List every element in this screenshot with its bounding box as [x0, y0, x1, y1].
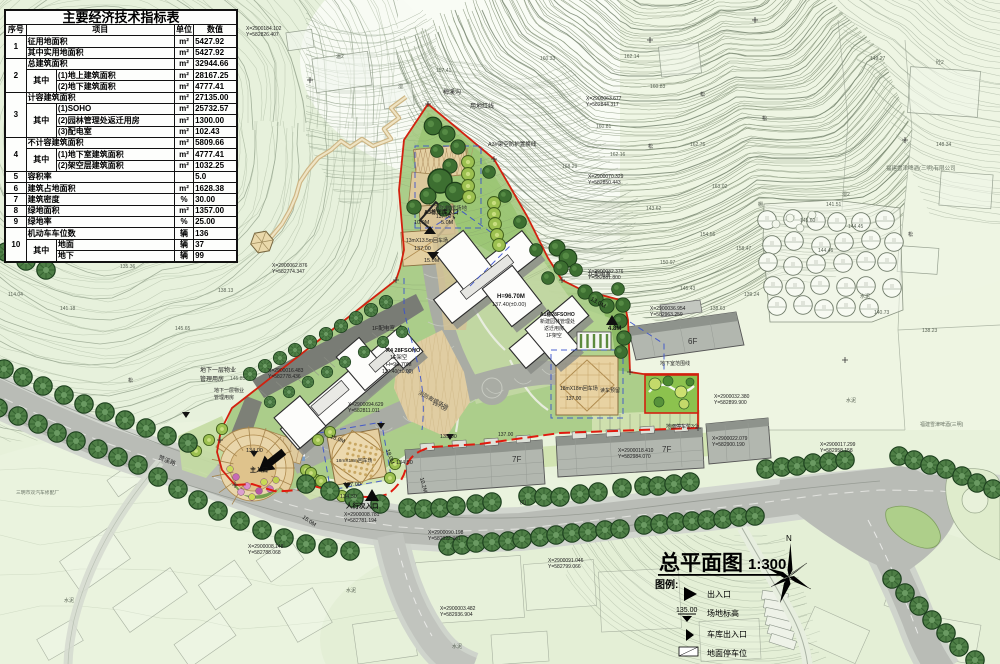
svg-text:棚: 棚	[758, 201, 763, 208]
svg-text:157.41: 157.41	[436, 68, 452, 74]
svg-text:141.18: 141.18	[60, 306, 76, 312]
svg-text:水泥: 水泥	[846, 397, 856, 404]
svg-text:福建雪津啤酒(三明): 福建雪津啤酒(三明)	[920, 421, 964, 428]
svg-text:162.16: 162.16	[610, 152, 626, 158]
svg-text:145.85: 145.85	[230, 376, 246, 382]
svg-text:A3#架空防护置换线: A3#架空防护置换线	[488, 140, 537, 148]
svg-text:143.62: 143.62	[646, 206, 662, 212]
svg-text:松: 松	[700, 91, 705, 98]
svg-text:A4 28FSOHO: A4 28FSOHO	[386, 348, 421, 354]
svg-text:137.00: 137.00	[344, 482, 361, 488]
svg-text:Y=582799.066: Y=582799.066	[548, 564, 581, 570]
svg-text:主入口: 主入口	[250, 466, 268, 474]
svg-text:150.97: 150.97	[660, 260, 676, 266]
svg-text:消防救援场地: 消防救援场地	[434, 204, 468, 212]
svg-text:114.04: 114.04	[8, 292, 23, 298]
svg-text:地面停车位: 地面停车位	[707, 648, 747, 658]
svg-text:松: 松	[908, 231, 913, 238]
svg-text:Y=582900.190: Y=582900.190	[712, 442, 745, 448]
svg-text:管理用房: 管理用房	[200, 375, 224, 383]
svg-text:5.0M: 5.0M	[441, 220, 454, 226]
svg-text:149.27: 149.27	[870, 56, 886, 62]
svg-text:Y=582774.347: Y=582774.347	[272, 269, 305, 275]
svg-text:Y=582844.317: Y=582844.317	[586, 102, 619, 108]
svg-text:三明市双汽车修配厂: 三明市双汽车修配厂	[16, 489, 59, 496]
svg-text:新建园林管理处: 新建园林管理处	[540, 318, 575, 325]
svg-text:137.00: 137.00	[414, 246, 431, 252]
svg-text:场地标高: 场地标高	[707, 608, 739, 618]
svg-text:总平面图: 总平面图	[659, 551, 743, 575]
svg-text:松: 松	[762, 115, 767, 122]
svg-text:车库出入口: 车库出入口	[707, 629, 747, 639]
svg-text:图例:: 图例:	[655, 578, 678, 591]
svg-text:Y=582826.407: Y=582826.407	[246, 32, 279, 38]
svg-text:162.76: 162.76	[690, 142, 706, 148]
svg-text:N: N	[786, 534, 792, 543]
svg-text:1F架空: 1F架空	[546, 332, 562, 339]
svg-text:Y=582963.259: Y=582963.259	[650, 312, 683, 318]
svg-text:18mX18m回车场: 18mX18m回车场	[560, 385, 598, 392]
svg-text:148.34: 148.34	[936, 142, 952, 148]
svg-text:松: 松	[648, 143, 653, 150]
svg-text:135.36: 135.36	[120, 264, 136, 270]
svg-text:137.00: 137.00	[436, 214, 452, 220]
svg-text:7F: 7F	[512, 455, 521, 464]
svg-text:144.46: 144.46	[818, 248, 834, 254]
svg-text:读车预留: 读车预留	[600, 387, 620, 394]
svg-text:返迁用房: 返迁用房	[544, 325, 564, 332]
svg-text:温2: 温2	[336, 53, 344, 60]
svg-text:144.45: 144.45	[848, 224, 864, 230]
svg-text:18mX18m回车场: 18mX18m回车场	[336, 457, 372, 464]
svg-text:145.65: 145.65	[175, 326, 191, 332]
svg-text:13mX13.5m回车场: 13mX13.5m回车场	[406, 237, 448, 244]
svg-text:H=96.70M: H=96.70M	[386, 362, 412, 368]
svg-text:137.00: 137.00	[498, 432, 514, 438]
svg-text:Y=582958.158: Y=582958.158	[820, 448, 853, 454]
svg-text:160.81: 160.81	[596, 124, 612, 130]
svg-text:砼2: 砼2	[936, 59, 944, 66]
svg-text:137.40(±0.00): 137.40(±0.00)	[382, 369, 413, 375]
svg-text:Y=582778.436: Y=582778.436	[268, 374, 301, 380]
svg-text:141.51: 141.51	[826, 202, 842, 208]
svg-text:水泥: 水泥	[64, 597, 74, 604]
svg-text:Y=582781.194: Y=582781.194	[344, 518, 377, 524]
svg-text:Y=582984.070: Y=582984.070	[618, 454, 651, 460]
svg-text:134.00: 134.00	[246, 448, 263, 454]
svg-text:Y=582850.443: Y=582850.443	[588, 180, 621, 186]
svg-text:地面停车位3个: 地面停车位3个	[666, 423, 699, 430]
svg-text:160.33: 160.33	[540, 56, 556, 62]
svg-text:(1): (1)	[520, 500, 526, 506]
svg-text:1F配电室: 1F配电室	[588, 270, 611, 278]
svg-text:15.0M: 15.0M	[424, 258, 440, 264]
svg-text:Y=582788.068: Y=582788.068	[248, 550, 281, 556]
svg-text:水泥: 水泥	[452, 643, 462, 650]
svg-text:1F架空: 1F架空	[390, 353, 408, 361]
svg-text:水泥: 水泥	[346, 587, 356, 594]
svg-text:Y=582936.904: Y=582936.904	[440, 612, 473, 618]
svg-text:松: 松	[128, 377, 133, 384]
svg-text:A1栋28FSOHO: A1栋28FSOHO	[540, 311, 575, 318]
svg-text:6F: 6F	[688, 337, 697, 346]
svg-text:168.29: 168.29	[562, 164, 578, 170]
svg-text:10.0M: 10.0M	[414, 220, 430, 226]
svg-text:135.00: 135.00	[676, 607, 698, 614]
svg-text:人行次入口: 人行次入口	[346, 501, 379, 510]
svg-text:地下一层物业: 地下一层物业	[214, 387, 244, 394]
svg-text:1F配电室: 1F配电室	[372, 324, 395, 332]
svg-text:139.24: 139.24	[744, 292, 760, 298]
svg-text:163.02: 163.02	[712, 184, 728, 190]
svg-text:地下室范围线: 地下室范围线	[660, 360, 690, 367]
svg-text:160.83: 160.83	[650, 84, 666, 90]
svg-text:湿: 湿	[398, 83, 403, 90]
svg-text:162.14: 162.14	[624, 54, 640, 60]
svg-text:134.50: 134.50	[396, 460, 413, 466]
svg-text:管理用房: 管理用房	[214, 394, 234, 401]
svg-text:用地红线: 用地红线	[470, 102, 494, 110]
svg-text:7F: 7F	[662, 445, 671, 454]
svg-text:137.40(±0.00): 137.40(±0.00)	[492, 302, 526, 308]
svg-text:138.23: 138.23	[922, 328, 938, 334]
svg-text:福建雪津啤酒(三明)有限公司: 福建雪津啤酒(三明)有限公司	[886, 164, 956, 172]
svg-text:Y=582899.900: Y=582899.900	[714, 400, 747, 406]
svg-text:138.63: 138.63	[710, 306, 726, 312]
svg-text:158.47: 158.47	[736, 246, 752, 252]
svg-text:Y=582811.011: Y=582811.011	[348, 408, 380, 414]
svg-text:出入口: 出入口	[707, 589, 731, 599]
svg-text:138.13: 138.13	[218, 288, 234, 294]
svg-text:Y=582922.361: Y=582922.361	[428, 536, 461, 542]
svg-text:140.73: 140.73	[874, 310, 890, 316]
svg-text:134.30: 134.30	[340, 494, 357, 500]
svg-text:H=96.70M: H=96.70M	[497, 294, 525, 300]
svg-text:梅溪沟: 梅溪沟	[443, 88, 461, 96]
svg-text:145.60: 145.60	[800, 218, 816, 224]
svg-text:1:300: 1:300	[748, 556, 786, 573]
svg-text:135.00: 135.00	[440, 434, 457, 440]
svg-text:154.56: 154.56	[700, 232, 716, 238]
svg-text:4.8M: 4.8M	[608, 326, 621, 332]
svg-text:地下一层物业: 地下一层物业	[200, 366, 236, 374]
svg-text:145.43: 145.43	[680, 286, 696, 292]
svg-text:湿2: 湿2	[842, 191, 850, 198]
svg-text:水泥: 水泥	[860, 293, 870, 300]
svg-text:137.00: 137.00	[566, 396, 582, 402]
